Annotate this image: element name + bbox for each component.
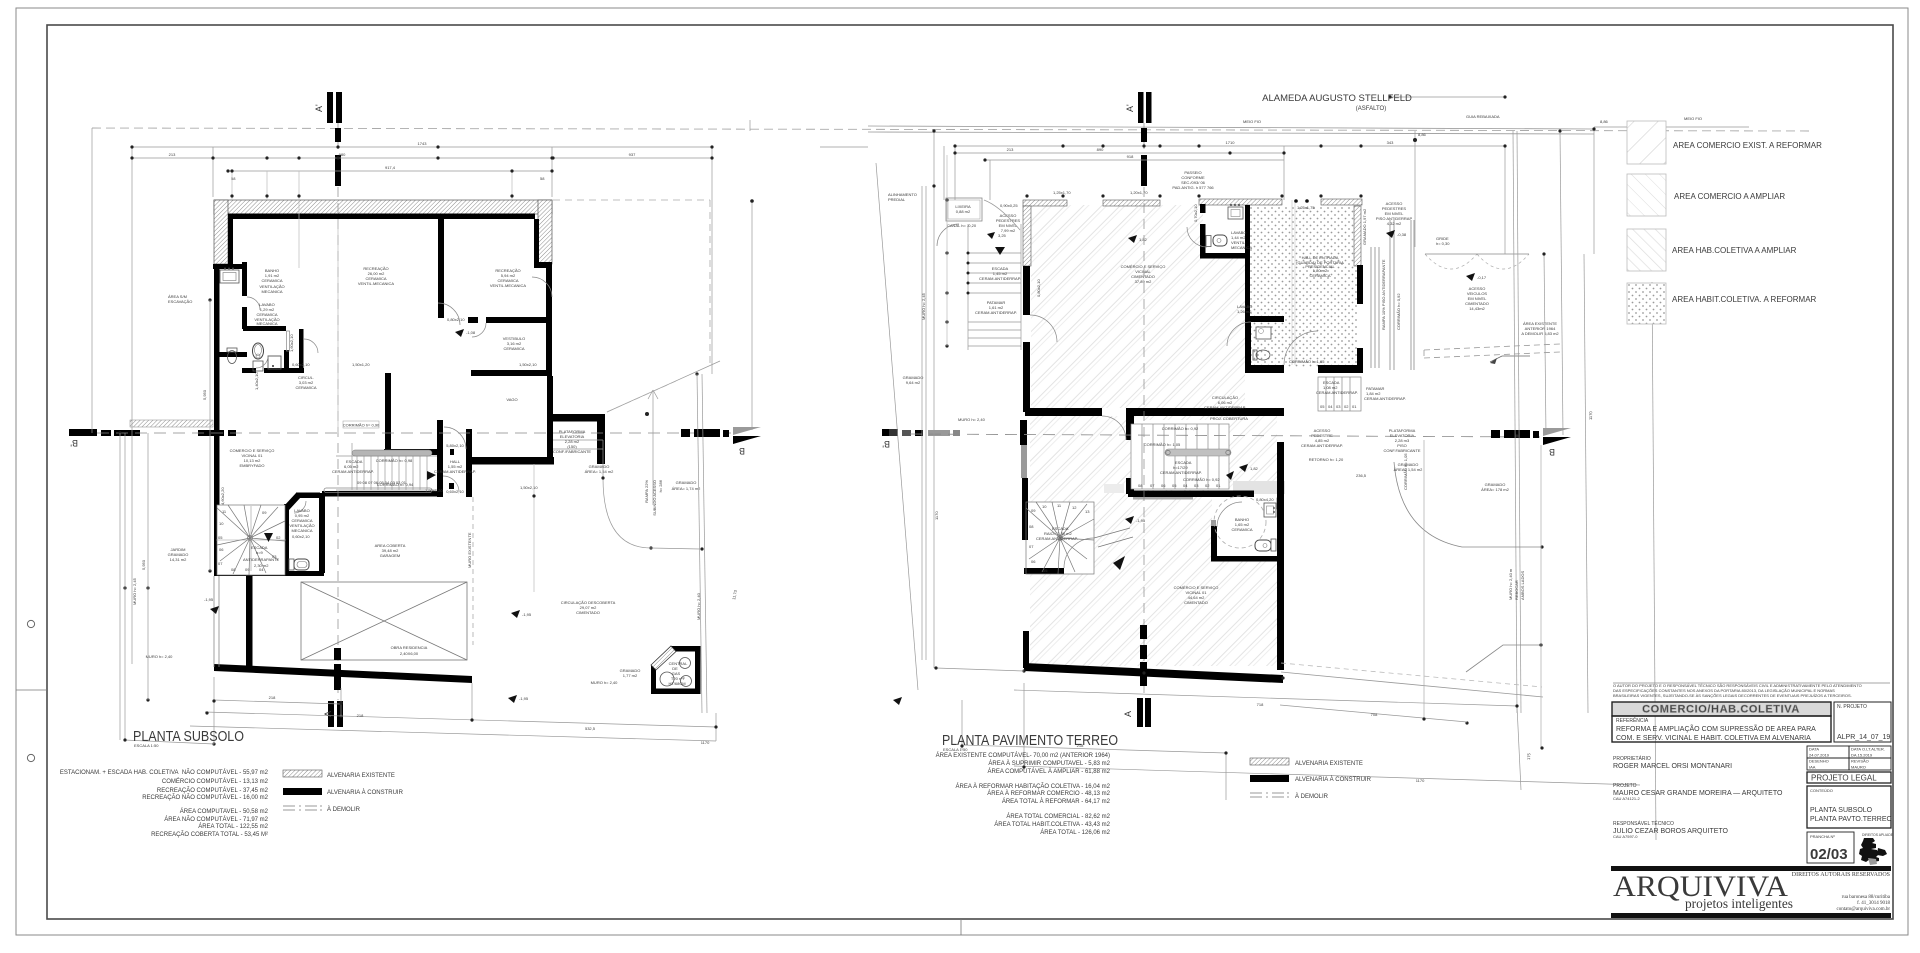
svg-text:IAA: IAA — [1809, 765, 1816, 770]
svg-text:09: 09 — [262, 510, 267, 515]
svg-text:PRANCHA Nº: PRANCHA Nº — [1810, 834, 1835, 839]
svg-text:CERAM.ANTIDERRAP.: CERAM.ANTIDERRAP. — [1036, 536, 1078, 541]
svg-text:1,26 m2: 1,26 m2 — [1237, 309, 1252, 314]
svg-text:06: 06 — [1161, 483, 1166, 488]
svg-text:1,25x1,75: 1,25x1,75 — [1297, 205, 1315, 210]
svg-text:1,25x1,70: 1,25x1,70 — [1053, 190, 1071, 195]
svg-text:RESPONSÁVEL TÉCNICO: RESPONSÁVEL TÉCNICO — [1613, 820, 1674, 827]
svg-text:13: 13 — [1085, 509, 1090, 514]
svg-text:RETORNO h= 1,20: RETORNO h= 1,20 — [1309, 457, 1344, 462]
svg-text:58: 58 — [540, 176, 545, 181]
svg-text:07: 07 — [218, 561, 223, 566]
svg-text:CERAMICA: CERAMICA — [503, 346, 524, 351]
svg-text:CIMENTADO: CIMENTADO — [576, 610, 600, 615]
svg-text:SUBINDO ACESSO: SUBINDO ACESSO — [652, 480, 657, 516]
svg-text:24.07.2019: 24.07.2019 — [1809, 753, 1830, 758]
svg-text:03: 03 — [1194, 483, 1199, 488]
svg-text:MURO h= 2,40: MURO h= 2,40 — [958, 417, 986, 422]
svg-text:0,60x2,10: 0,60x2,10 — [292, 362, 310, 367]
svg-text:ÁREA TOTAL À REFORMAR - 64,17: ÁREA TOTAL À REFORMAR - 64,17 m2 — [1002, 798, 1111, 805]
svg-text:05: 05 — [1320, 404, 1325, 409]
svg-text:08: 08 — [1029, 524, 1034, 529]
svg-text:ÁREA À REFORMAR HABITAÇÃO COLE: ÁREA À REFORMAR HABITAÇÃO COLETIVA - 16,… — [956, 783, 1111, 790]
svg-text:0,60x2,10: 0,60x2,10 — [292, 534, 310, 539]
svg-text:ALVENARIA À CONSTRUIR: ALVENARIA À CONSTRUIR — [327, 789, 404, 796]
svg-text:CORRIMÃO h=1,05: CORRIMÃO h=1,05 — [1289, 359, 1325, 364]
svg-text:A DEMOLIR 5,83 m2: A DEMOLIR 5,83 m2 — [1521, 331, 1559, 336]
svg-text:09 08 07 06 05 04 03 02: 09 08 07 06 05 04 03 02 01 — [357, 480, 407, 485]
svg-text:CERAM.ANTIDERRAP.: CERAM.ANTIDERRAP. — [1301, 443, 1343, 448]
svg-text:06: 06 — [219, 547, 224, 552]
svg-text:rua baronesa 88/curitiba: rua baronesa 88/curitiba — [1842, 895, 1891, 900]
svg-text:ESCALA 1:50: ESCALA 1:50 — [943, 747, 968, 752]
svg-text:-1,95: -1,95 — [1136, 518, 1146, 523]
svg-text:CERAM.ANTIDERRAP.: CERAM.ANTIDERRAP. — [979, 276, 1021, 281]
svg-text:1,50x2,10: 1,50x2,10 — [520, 485, 538, 490]
svg-text:PROJETO: PROJETO — [1613, 783, 1637, 789]
svg-text:CAU A74121-2: CAU A74121-2 — [1613, 796, 1640, 801]
svg-text:218: 218 — [269, 695, 276, 700]
svg-text:05: 05 — [218, 535, 223, 540]
svg-text:236,5: 236,5 — [1356, 473, 1367, 478]
svg-text:MURO h= 2,40 m: MURO h= 2,40 m — [1508, 568, 1513, 600]
svg-text:0,88 m2: 0,88 m2 — [956, 209, 971, 214]
svg-text:04: 04 — [1328, 404, 1333, 409]
svg-text:ÁREA TOTAL HABIT.COLETIVA - 43: ÁREA TOTAL HABIT.COLETIVA - 43,43 m2 — [994, 821, 1110, 828]
svg-text:HT/68CM: HT/68CM — [668, 681, 685, 686]
svg-text:h= 0,30: h= 0,30 — [1436, 241, 1450, 246]
svg-text:12: 12 — [1072, 505, 1077, 510]
svg-text:A': A' — [1125, 104, 1135, 112]
svg-text:0,90x0,25: 0,90x0,25 — [1000, 203, 1018, 208]
svg-text:ÁREA EXISTENTE COMPUTÁVEL- 70,: ÁREA EXISTENTE COMPUTÁVEL- 70,00 m2 (ANT… — [936, 752, 1110, 759]
svg-text:h=9: h=9 — [256, 550, 264, 555]
svg-text:PLANTA SUBSOLO: PLANTA SUBSOLO — [1810, 807, 1873, 814]
svg-text:AREA COMERCIO EXIST. A REFORMA: AREA COMERCIO EXIST. A REFORMAR — [1673, 141, 1822, 150]
svg-text:0,70x2,10: 0,70x2,10 — [1193, 204, 1198, 222]
svg-text:0,80x2,10: 0,80x2,10 — [447, 317, 465, 322]
svg-text:PAD.ANTIG. h 577 766: PAD.ANTIG. h 577 766 — [1172, 185, 1214, 190]
svg-text:PREDIAL: PREDIAL — [888, 197, 906, 202]
svg-text:ESCALA 1:50: ESCALA 1:50 — [134, 743, 159, 748]
svg-text:VAGO: VAGO — [506, 397, 517, 402]
svg-text:02/03: 02/03 — [1810, 846, 1848, 863]
svg-text:CONTEÚDO: CONTEÚDO — [1810, 788, 1833, 793]
svg-text:RECREAÇÃO COMPUTÁVEL - 37,45 m: RECREAÇÃO COMPUTÁVEL - 37,45 m2 — [157, 787, 269, 794]
svg-text:03: 03 — [272, 554, 277, 559]
svg-text:1,50x1,20: 1,50x1,20 — [352, 362, 370, 367]
svg-text:MECANICA: MECANICA — [261, 289, 282, 294]
svg-text:1,20x1,70: 1,20x1,70 — [1130, 190, 1148, 195]
svg-text:1170: 1170 — [701, 740, 710, 745]
svg-text:GUIA REBAIXADA: GUIA REBAIXADA — [1466, 114, 1500, 119]
svg-text:ÁREA= 1,54 m2: ÁREA= 1,54 m2 — [585, 469, 615, 474]
svg-text:3,25: 3,25 — [998, 233, 1007, 238]
svg-text:8,86: 8,86 — [1418, 132, 1427, 137]
svg-text:MECANICA: MECANICA — [1231, 245, 1252, 250]
svg-text:CORRIMÃO h= 0,90: CORRIMÃO h= 0,90 — [343, 423, 380, 428]
svg-text:DATA: DATA — [1809, 747, 1819, 752]
svg-text:0,80x2,10: 0,80x2,10 — [1036, 279, 1041, 297]
svg-text:h= 286: h= 286 — [658, 479, 663, 492]
svg-text:CERAM.ANTIDERRAP.: CERAM.ANTIDERRAP. — [975, 310, 1017, 315]
svg-text:ÁREA= 178 m2: ÁREA= 178 m2 — [1481, 487, 1509, 492]
svg-text:BRASILEIRAS VIGENTES, SUJEITAN: BRASILEIRAS VIGENTES, SUJEITANDO-SE ÀS S… — [1613, 693, 1852, 698]
svg-text:DESENHO: DESENHO — [1809, 759, 1829, 764]
svg-text:ALPR_14_07_19: ALPR_14_07_19 — [1837, 734, 1890, 741]
svg-text:MURO EXISTENTE: MURO EXISTENTE — [467, 532, 472, 568]
svg-text:B: B — [1549, 447, 1555, 457]
svg-text:1170: 1170 — [934, 511, 939, 520]
svg-text:REBOCAR: REBOCAR — [1514, 580, 1519, 600]
svg-text:CAU A7597-0: CAU A7597-0 — [1613, 834, 1638, 839]
svg-text:DIREITOS AUTORAIS RESERVADOS: DIREITOS AUTORAIS RESERVADOS — [1792, 872, 1890, 878]
svg-text:213: 213 — [1007, 147, 1014, 152]
svg-text:4,32 m2: 4,32 m2 — [1387, 221, 1402, 226]
svg-text:À DEMOLIR: À DEMOLIR — [327, 806, 361, 813]
svg-text:CORRIMÃO h= 0,92: CORRIMÃO h= 0,92 — [1396, 293, 1401, 330]
svg-text:532,5: 532,5 — [585, 726, 596, 731]
svg-text:PROJETO LEGAL: PROJETO LEGAL — [1811, 774, 1877, 783]
svg-text:5,950: 5,950 — [141, 559, 146, 570]
svg-text:08: 08 — [231, 567, 236, 572]
svg-text:03: 03 — [1336, 404, 1341, 409]
svg-text:ESTACIONAM. + ESCADA HAB. COLE: ESTACIONAM. + ESCADA HAB. COLETIVA NÃO C… — [60, 769, 269, 776]
svg-text:ÁREA COMPUTÁVEL À AMPLIAR - 61: ÁREA COMPUTÁVEL À AMPLIAR - 61,88 m2 — [988, 768, 1111, 775]
svg-text:1,77 m2: 1,77 m2 — [623, 673, 638, 678]
svg-text:PROPRIETÁRIO: PROPRIETÁRIO — [1613, 755, 1651, 762]
svg-text:ESCAVAÇÃO: ESCAVAÇÃO — [168, 299, 192, 304]
svg-text:-1,95: -1,95 — [204, 597, 214, 602]
svg-text:07: 07 — [1150, 483, 1155, 488]
svg-text:09: 09 — [245, 567, 250, 572]
svg-text:02: 02 — [1344, 404, 1349, 409]
svg-text:917,4: 917,4 — [385, 165, 396, 170]
svg-text:A: A — [323, 711, 333, 717]
svg-text:5,80x2,10: 5,80x2,10 — [446, 443, 464, 448]
svg-text:CERAMICA: CERAMICA — [295, 385, 316, 390]
svg-text:14,31 m2: 14,31 m2 — [170, 557, 187, 562]
svg-text:14,43m2: 14,43m2 — [1469, 306, 1485, 311]
svg-text:4,60x2,20: 4,60x2,20 — [220, 487, 225, 505]
svg-text:ÁREA TOTAL COMERCIAL - 82,62 m: ÁREA TOTAL COMERCIAL - 82,62 m2 — [1006, 813, 1110, 820]
svg-text:708: 708 — [1371, 712, 1378, 717]
svg-text:DIREITOS APLIADE: DIREITOS APLIADE — [1862, 833, 1894, 837]
svg-text:CONF.FABRICANTE: CONF.FABRICANTE — [1383, 448, 1420, 453]
svg-text:PROJ. COBERTURA: PROJ. COBERTURA — [1210, 416, 1248, 421]
svg-text:-1,95: -1,95 — [522, 612, 532, 617]
svg-text:175: 175 — [1526, 752, 1531, 760]
svg-text:MURO h= 2,40: MURO h= 2,40 — [696, 592, 701, 620]
svg-text:CORRIMÃO h= 1,05: CORRIMÃO h= 1,05 — [1144, 442, 1181, 447]
svg-text:(ASFALTO): (ASFALTO) — [1356, 106, 1386, 112]
svg-text:DATA O.LT.ALTER.: DATA O.LT.ALTER. — [1851, 747, 1885, 752]
svg-text:04: 04 — [1183, 483, 1188, 488]
svg-text:02: 02 — [276, 535, 281, 540]
svg-text:A: A — [1123, 711, 1133, 717]
svg-text:VENTIL.MECANICA: VENTIL.MECANICA — [490, 283, 527, 288]
svg-text:218: 218 — [357, 713, 364, 718]
svg-text:ALAMEDA AUGUSTO STELLFELD: ALAMEDA AUGUSTO STELLFELD — [1262, 93, 1412, 104]
svg-text:CERAM.ANTIDERRAP.: CERAM.ANTIDERRAP. — [332, 469, 374, 474]
svg-text:37,89 m2: 37,89 m2 — [1135, 279, 1152, 284]
svg-text:10: 10 — [219, 521, 224, 526]
svg-text:04: 04 — [259, 567, 264, 572]
svg-text:10: 10 — [1042, 504, 1047, 509]
svg-text:05: 05 — [1043, 568, 1048, 573]
svg-text:N. PROJETO: N. PROJETO — [1837, 704, 1867, 710]
svg-text:B': B' — [70, 438, 78, 448]
svg-text:CERAM.ANTIDERRAP.: CERAM.ANTIDERRAP. — [1160, 470, 1202, 475]
svg-text:ÁREA= 1,74 m2: ÁREA= 1,74 m2 — [672, 486, 702, 491]
svg-text:0,80x4,20: 0,80x4,20 — [1256, 497, 1274, 502]
svg-text:1743: 1743 — [418, 141, 428, 146]
svg-text:-1,08: -1,08 — [466, 330, 476, 335]
svg-text:1,82: 1,82 — [1139, 237, 1148, 242]
svg-text:1,60x2,10: 1,60x2,10 — [289, 334, 294, 352]
svg-text:ÁREA COMPUTAVEL - 50,58 m2: ÁREA COMPUTAVEL - 50,58 m2 — [180, 808, 269, 815]
svg-text:CERAM.ANTIDERRAP.: CERAM.ANTIDERRAP. — [434, 469, 476, 474]
svg-text:REVISÃO: REVISÃO — [1851, 759, 1869, 764]
svg-text:09: 09 — [1031, 508, 1036, 513]
svg-text:ALVENARIA À CONSTRUIR: ALVENARIA À CONSTRUIR — [1295, 776, 1372, 783]
svg-text:07: 07 — [1029, 544, 1034, 549]
svg-text:937: 937 — [629, 152, 636, 157]
svg-text:ROGER MARCEL ORSI MONTANARI: ROGER MARCEL ORSI MONTANARI — [1613, 763, 1732, 770]
svg-text:PLANTA PAVIMENTO TERREO: PLANTA PAVIMENTO TERREO — [942, 732, 1118, 749]
svg-text:9,64 m2: 9,64 m2 — [906, 380, 921, 385]
svg-text:A': A' — [314, 104, 324, 112]
svg-text:B: B — [739, 446, 745, 456]
svg-text:CORRIMÃO h= 0,92: CORRIMÃO h= 0,92 — [1162, 426, 1199, 431]
svg-text:GRAMADO: GRAMADO — [676, 480, 697, 485]
svg-text:7,99 m2: 7,99 m2 — [1001, 228, 1016, 233]
svg-text:918: 918 — [1127, 154, 1134, 159]
svg-text:COMERCIO/HAB.COLETIVA: COMERCIO/HAB.COLETIVA — [1642, 704, 1800, 716]
svg-text:1,50x1,20: 1,50x1,20 — [425, 488, 443, 493]
svg-text:-0,17: -0,17 — [1477, 275, 1487, 280]
svg-text:08: 08 — [1138, 483, 1143, 488]
svg-text:B': B' — [882, 439, 890, 449]
svg-text:MURO h= 2,45: MURO h= 2,45 — [921, 292, 926, 320]
svg-text:CERAM.ANTIDERRAP.: CERAM.ANTIDERRAP. — [1204, 405, 1246, 410]
svg-text:MECANICA: MECANICA — [291, 528, 312, 533]
svg-text:CERAM.ANTIDERRAP.: CERAM.ANTIDERRAP. — [1364, 396, 1406, 401]
svg-text:980: 980 — [339, 152, 346, 157]
svg-text:CERAMICA: CERAMICA — [261, 278, 282, 283]
svg-text:GRAMADO 1,97 m2: GRAMADO 1,97 m2 — [1362, 208, 1367, 245]
svg-text:01: 01 — [1352, 404, 1357, 409]
svg-text:1,40x2,10: 1,40x2,10 — [254, 372, 259, 390]
svg-text:AREA HAB.COLETIVA A AMPLIAR: AREA HAB.COLETIVA A AMPLIAR — [1672, 246, 1797, 255]
svg-text:05: 05 — [1172, 483, 1177, 488]
svg-text:02: 02 — [1205, 483, 1210, 488]
svg-text:GARAGEM: GARAGEM — [380, 553, 400, 558]
svg-text:AREA HABIT.COLETIVA. A REFORMA: AREA HABIT.COLETIVA. A REFORMAR — [1672, 295, 1817, 304]
svg-text:ALVENARIA EXISTENTE: ALVENARIA EXISTENTE — [327, 773, 395, 779]
svg-text:343: 343 — [1387, 140, 1394, 145]
svg-text:MEIO FIO: MEIO FIO — [1243, 119, 1261, 124]
svg-text:RAMPA 10% PISO ANTIDERRAPANTE: RAMPA 10% PISO ANTIDERRAPANTE — [1381, 259, 1386, 330]
svg-text:COMÉRCIO COMPUTÁVEL - 13,13 m2: COMÉRCIO COMPUTÁVEL - 13,13 m2 — [162, 778, 269, 785]
svg-text:AREA COMERCIO A AMPLIAR: AREA COMERCIO A AMPLIAR — [1674, 192, 1785, 201]
svg-text:8,86: 8,86 — [1600, 119, 1609, 124]
svg-text:5,950: 5,950 — [202, 389, 207, 400]
svg-text:À DEMOLIR: À DEMOLIR — [1295, 793, 1329, 800]
svg-text:CONF./FABRICANTE: CONF./FABRICANTE — [553, 449, 592, 454]
svg-text:MAURO: MAURO — [1851, 765, 1866, 770]
svg-text:MEIO FIO: MEIO FIO — [1684, 116, 1702, 121]
svg-text:890: 890 — [1097, 147, 1104, 152]
svg-text:MURO h= 2,45: MURO h= 2,45 — [132, 577, 137, 605]
svg-text:ÁREA TOTAL - 122,55 m2: ÁREA TOTAL - 122,55 m2 — [198, 823, 268, 830]
svg-text:ÁREA TOTAL - 126,06 m2: ÁREA TOTAL - 126,06 m2 — [1040, 829, 1110, 836]
svg-text:ÁREA= 1,54 m2: ÁREA= 1,54 m2 — [1394, 467, 1424, 472]
svg-text:0,60x2,10: 0,60x2,10 — [446, 489, 464, 494]
svg-text:ALVENARIA EXISTENTE: ALVENARIA EXISTENTE — [1295, 761, 1363, 767]
svg-text:1710: 1710 — [1226, 140, 1236, 145]
svg-text:01: 01 — [1216, 483, 1221, 488]
svg-text:CERAMICA: CERAMICA — [1231, 527, 1252, 532]
svg-text:RECREAÇÃO NÃO COMPUTÁVEL - 16,: RECREAÇÃO NÃO COMPUTÁVEL - 16,00 m2 — [142, 794, 268, 801]
svg-text:RECREAÇÃO COBERTA TOTAL - 53,4: RECREAÇÃO COBERTA TOTAL - 53,45 M² — [151, 831, 268, 838]
svg-text:718: 718 — [1257, 702, 1264, 707]
svg-text:EMBRYFADO: EMBRYFADO — [239, 463, 264, 468]
svg-text:-1,95: -1,95 — [519, 696, 529, 701]
svg-text:CERAM.ANTIDERRAP.: CERAM.ANTIDERRAP. — [1316, 390, 1358, 395]
svg-text:CERAMICA: CERAMICA — [1309, 273, 1330, 278]
svg-text:MURO h= 2,40: MURO h= 2,40 — [146, 654, 174, 659]
svg-text:REFORMA E AMPLIAÇÃO COM SUPRES: REFORMA E AMPLIAÇÃO COM SUPRESSÃO DE ARE… — [1616, 724, 1816, 733]
svg-text:MURO h= 2,40: MURO h= 2,40 — [591, 680, 619, 685]
svg-text:OBRA RESIDENCIA: OBRA RESIDENCIA — [391, 645, 428, 650]
svg-text:COM. E SERV. VICINAL E HABIT.: COM. E SERV. VICINAL E HABIT. COLETIVA E… — [1616, 735, 1811, 742]
svg-text:CORRIMÃO h= 0,98: CORRIMÃO h= 0,98 — [376, 458, 413, 463]
svg-text:1170: 1170 — [1416, 778, 1425, 783]
svg-text:AMBOS LADOS: AMBOS LADOS — [1520, 571, 1525, 600]
svg-text:RAMPA 22%: RAMPA 22% — [644, 480, 649, 503]
svg-text:contato@arquiviva.com.br: contato@arquiviva.com.br — [1837, 907, 1891, 912]
svg-text:1170: 1170 — [1588, 411, 1593, 420]
svg-text:VENTIL.MECANICA: VENTIL.MECANICA — [358, 281, 395, 286]
svg-text:DA.15.2019: DA.15.2019 — [1851, 753, 1873, 758]
svg-text:213: 213 — [169, 152, 176, 157]
svg-text:ÁREA À REFORMAR COMERCIO - 48: ÁREA À REFORMAR COMERCIO - 48,13 m2 — [987, 790, 1110, 797]
svg-text:1,50x2,10: 1,50x2,10 — [519, 362, 537, 367]
svg-text:PLANTA PAVTO.TERREO: PLANTA PAVTO.TERREO — [1810, 816, 1893, 823]
svg-text:CIMENTADO: CIMENTADO — [1184, 600, 1208, 605]
svg-text:ÁREA NÃO COMPUTÁVEL - 71,97 m2: ÁREA NÃO COMPUTÁVEL - 71,97 m2 — [164, 816, 268, 823]
svg-text:REFERÊNCIA: REFERÊNCIA — [1616, 716, 1649, 724]
svg-text:1,82: 1,82 — [1250, 466, 1259, 471]
svg-text:CORRIMÃO h= 0,92: CORRIMÃO h= 0,92 — [1183, 477, 1220, 482]
svg-text:2,40X6,00: 2,40X6,00 — [400, 651, 419, 656]
svg-text:f. 41_3014 9018: f. 41_3014 9018 — [1857, 901, 1890, 906]
svg-text:projetos inteligentes: projetos inteligentes — [1685, 896, 1793, 911]
svg-text:06: 06 — [1031, 559, 1036, 564]
svg-text:MECANICA: MECANICA — [256, 321, 277, 326]
svg-text:-0,38: -0,38 — [1397, 232, 1407, 237]
svg-text:ÁREA À SUPRIMIR COMPUTAVEL - 5: ÁREA À SUPRIMIR COMPUTAVEL - 5,83 m2 — [988, 760, 1110, 767]
